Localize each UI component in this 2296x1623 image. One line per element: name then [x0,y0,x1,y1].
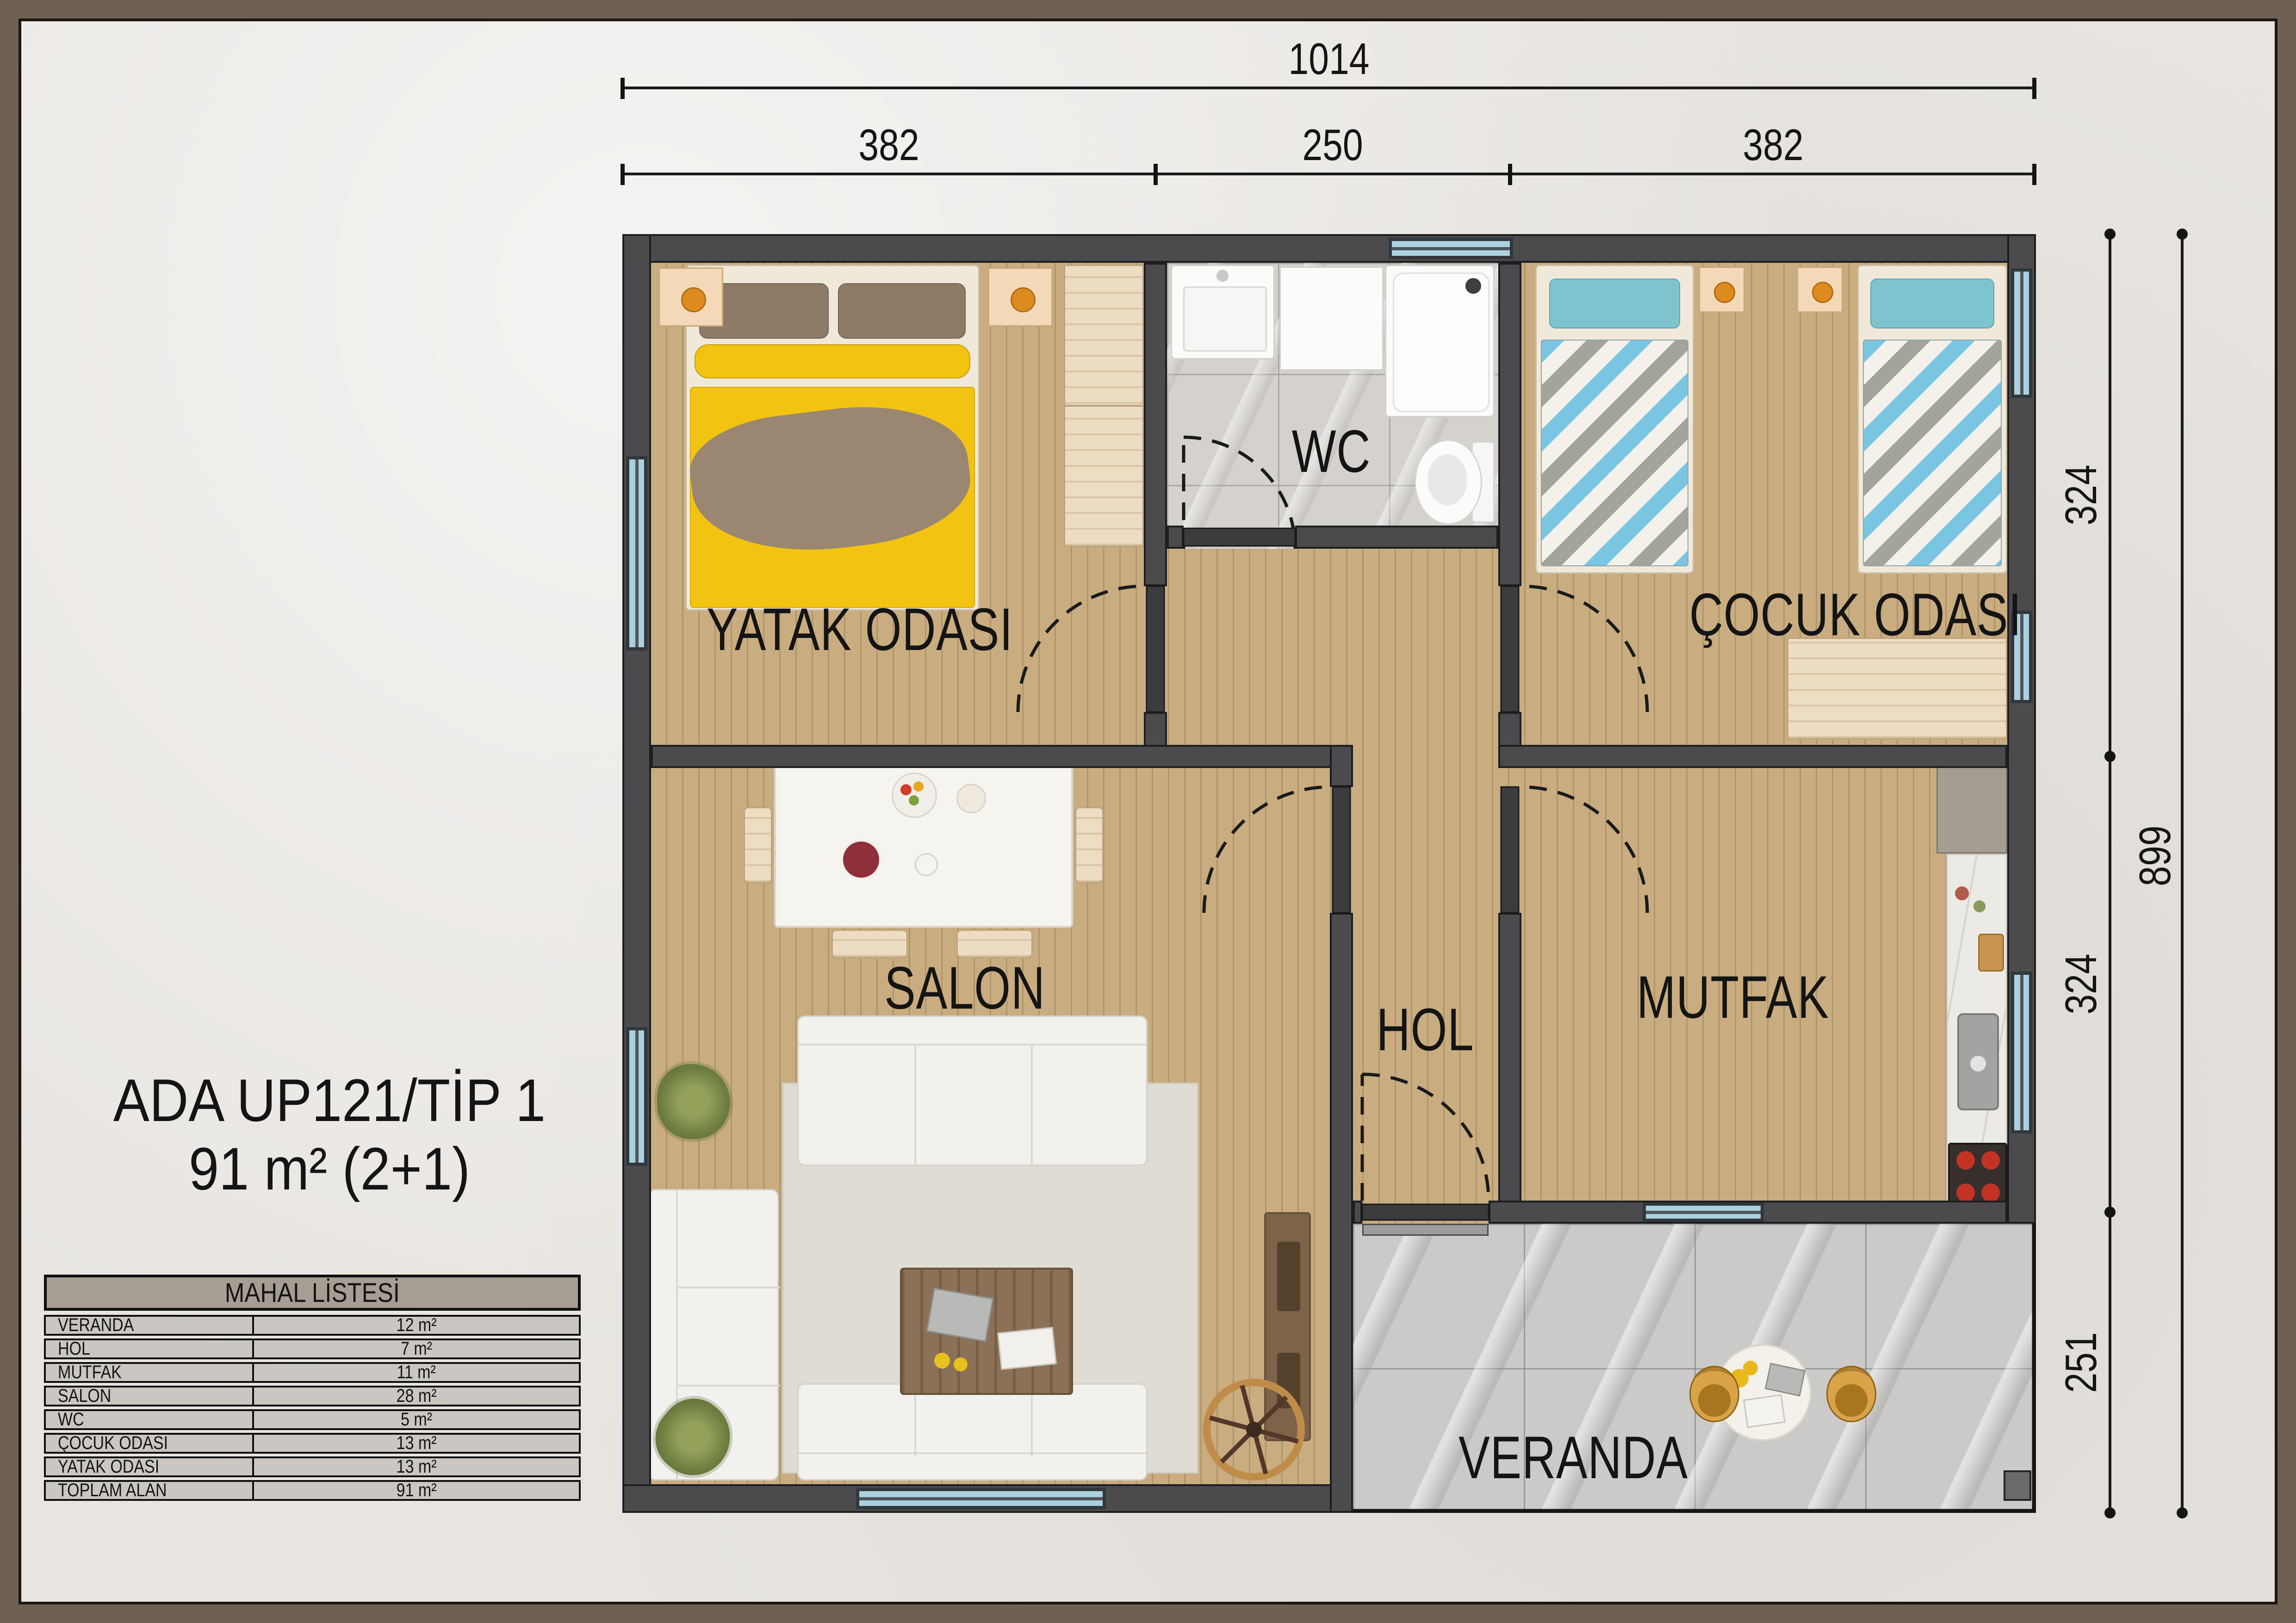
burner [1956,1151,1975,1170]
row-area-cell: 13 m² [254,1435,579,1452]
row-area: 13 m² [397,1456,437,1477]
three-seat-sofa [797,1016,1148,1166]
row-name: SALON [58,1386,111,1406]
row-area-cell: 13 m² [254,1458,579,1475]
wall-veranda-north-stub [1353,1201,1362,1224]
coffee-table [900,1268,1073,1395]
yellow-bolster-pillow [695,344,970,378]
table-header: MAHAL LİSTESİ [44,1275,581,1311]
row-name: WC [58,1409,84,1430]
wall-divider-west [651,745,1353,768]
row-area: 5 m² [401,1409,432,1430]
lemon [934,1353,950,1369]
rattan-chair [1826,1366,1876,1422]
dim-tick [2032,78,2036,99]
cutting-board [1978,934,2004,972]
row-name-cell: HOL [46,1340,254,1357]
mahal-listesi-table: MAHAL LİSTESİ VERANDA 12 m² HOL 7 m² MUT… [44,1275,581,1504]
nightstand [658,267,723,327]
window-salon-west [626,1027,647,1166]
decor-plate [1714,282,1735,303]
burner [1981,1183,2000,1202]
row-area-cell: 7 m² [254,1340,579,1357]
wall-salon-east [1330,913,1353,1513]
entrance-threshold [1362,1224,1489,1236]
room-label-cocuk-odasi: ÇOCUK ODASI [1689,580,2022,649]
laptop [1765,1363,1806,1397]
tv-unit-shelf [1277,1242,1300,1311]
dining-table [774,763,1073,928]
table-row: HOL 7 m² [44,1338,581,1359]
dining-chair [744,807,772,883]
row-area: 12 m² [397,1315,437,1336]
sofa-seam [799,1044,1146,1046]
potted-plant [657,1064,730,1139]
dim-line-right-segments [2109,234,2111,1513]
window-cocuk-a [2011,268,2032,398]
wall-wc-south-a [1167,526,1184,549]
decor-plate [1812,282,1833,303]
row-name: HOL [58,1338,90,1359]
dim-tick [2104,1207,2116,1218]
row-name-cell: ÇOCUK ODASI [46,1435,254,1452]
rattan-chair [1689,1366,1739,1422]
dim-tick [2104,229,2116,240]
sofa-seam [676,1385,780,1387]
wardrobe [1064,265,1144,547]
row-name-cell: VERANDA [46,1317,254,1334]
row-area-cell: 91 m² [254,1482,579,1499]
sofa-seam [1031,1044,1033,1167]
dim-tick [2032,164,2036,185]
toilet [1415,438,1495,525]
dessert-plate [956,784,986,813]
room-label-veranda: VERANDA [1458,1423,1688,1492]
decor-wheel [1203,1379,1305,1481]
room-label-wc: WC [1292,416,1371,486]
row-name-cell: YATAK ODASI [46,1458,254,1475]
pillow [1870,279,1994,328]
wheel-hub [1246,1422,1262,1437]
table-row: ÇOCUK ODASI 13 m² [44,1433,581,1454]
wall-wc-east [1498,263,1521,586]
dim-line-top-total [622,87,2036,89]
room-label-hol: HOL [1377,995,1474,1064]
wall-divider-east [1498,745,2007,768]
dim-tick [1154,164,1158,185]
row-area-cell: 28 m² [254,1388,579,1405]
window-yatak [626,456,647,650]
dim-tick [1508,164,1512,185]
dim-tick [2104,1507,2116,1518]
sofa-seam [914,1044,916,1167]
dim-tick [2104,751,2116,762]
floor-plan-page: { "title": { "line1": "ADA UP121/TİP 1",… [0,0,2296,1623]
decor-plate [681,287,706,312]
dim-top-seg-1: 382 [858,120,919,171]
wall-salon-east-stub [1330,745,1353,787]
cup [915,853,938,876]
dim-tick [621,78,625,99]
sofa-seam [676,1287,780,1288]
table-row: SALON 28 m² [44,1386,581,1406]
row-area: 91 m² [397,1480,437,1501]
dim-right-seg-1: 324 [2056,465,2107,525]
wall-mutfak-west [1498,913,1521,1224]
wc-cabinet [1279,266,1384,371]
floor-plan: YATAK ODASI WC ÇOCUK ODASI SALON HOL MUT… [622,234,2036,1513]
wardrobe-shelf-line [1065,405,1142,407]
dim-top-total: 1014 [1288,34,1369,85]
laptop [926,1288,994,1342]
wall-exterior-top [622,234,2036,263]
row-area: 28 m² [397,1386,437,1406]
sofa-seam [914,1385,916,1457]
dim-top-seg-3: 382 [1743,120,1803,171]
room-label-yatak-odasi: YATAK ODASI [707,595,1013,664]
dim-top-seg-2: 250 [1302,120,1363,171]
dim-line-right-total [2181,234,2184,1513]
room-label-salon: SALON [884,953,1045,1022]
shower-tray [1385,265,1495,417]
dim-right-total: 899 [2130,825,2181,886]
fruit [909,795,919,805]
dim-tick [2177,1507,2188,1518]
room-label-mutfak: MUTFAK [1637,962,1829,1032]
row-name: MUTFAK [58,1362,122,1383]
row-area: 13 m² [397,1433,437,1454]
sink-basin [1183,286,1267,352]
row-area: 11 m² [397,1362,436,1383]
table-row: VERANDA 12 m² [44,1315,581,1336]
row-name: YATAK ODASI [58,1456,159,1477]
veranda-marble-floor [1353,1224,2036,1513]
row-name: VERANDA [58,1315,134,1336]
wall-exterior-left [622,234,651,1513]
dim-right-seg-2: 324 [2056,954,2107,1014]
window-veranda [1643,1202,1764,1222]
pillow [838,283,966,339]
row-name-cell: WC [46,1411,254,1428]
toilet-seat [1427,454,1467,505]
kitchen-sink [1957,1013,1999,1110]
sofa-seam [799,1452,1146,1454]
table-row: TOPLAM ALAN 91 m² [44,1480,581,1501]
desk [1787,638,2007,739]
lemon [954,1357,968,1371]
row-area-cell: 11 m² [254,1364,579,1381]
row-name: TOPLAM ALAN [58,1480,167,1501]
wall-wc-south-b [1295,526,1498,549]
burner [1981,1151,2000,1170]
fruit [913,781,924,792]
spice-jar [1955,886,1969,900]
fruit-bowl [892,773,937,818]
row-name-cell: SALON [46,1388,254,1405]
sofa-seam [1031,1385,1033,1457]
plan-title: ADA UP121/TİP 1 [113,1065,546,1135]
row-name: ÇOCUK ODASI [58,1433,168,1454]
doormat [2004,1470,2031,1501]
row-name-cell: MUTFAK [46,1364,254,1381]
shower-drain [1465,278,1481,294]
window-wc [1389,238,1513,259]
fruit [900,784,912,795]
row-name-cell: TOPLAM ALAN [46,1482,254,1499]
magazines [997,1327,1057,1370]
chevron-blanket [1863,340,2002,566]
dim-right-seg-3: 251 [2056,1332,2107,1393]
dining-chair [1075,807,1104,883]
sink-drain [1970,1056,1986,1072]
kitchen-upper-cabinet [1936,763,2007,854]
nightstand [1797,266,1843,313]
sunflowers [1743,1361,1758,1375]
bathroom-sink [1171,265,1275,359]
row-area: 7 m² [401,1338,432,1359]
dim-tick [2177,229,2188,240]
chevron-blanket [1541,340,1688,566]
three-seat-sofa [797,1383,1148,1481]
dim-tick [621,164,625,185]
burner [1956,1183,1975,1202]
sink-faucet [1216,270,1229,282]
table-row: YATAK ODASI 13 m² [44,1456,581,1477]
table-row: MUTFAK 11 m² [44,1362,581,1383]
pillow [1549,279,1680,328]
decor-plate [1011,287,1036,312]
window-mutfak [2011,972,2032,1134]
dim-line-top-segments [622,173,2036,175]
red-plate [841,839,881,880]
nightstand [988,267,1053,327]
nightstand [1699,266,1745,313]
plan-subtitle: 91 m² (2+1) [189,1134,470,1203]
row-area-cell: 12 m² [254,1317,579,1334]
table-row: WC 5 m² [44,1409,581,1430]
magazine [1743,1394,1786,1428]
row-area-cell: 5 m² [254,1411,579,1428]
window-salon-south [856,1488,1106,1509]
wall-yatak-east [1144,263,1167,586]
table-title: MAHAL LİSTESİ [225,1277,400,1308]
spice-jar [1973,900,1986,912]
